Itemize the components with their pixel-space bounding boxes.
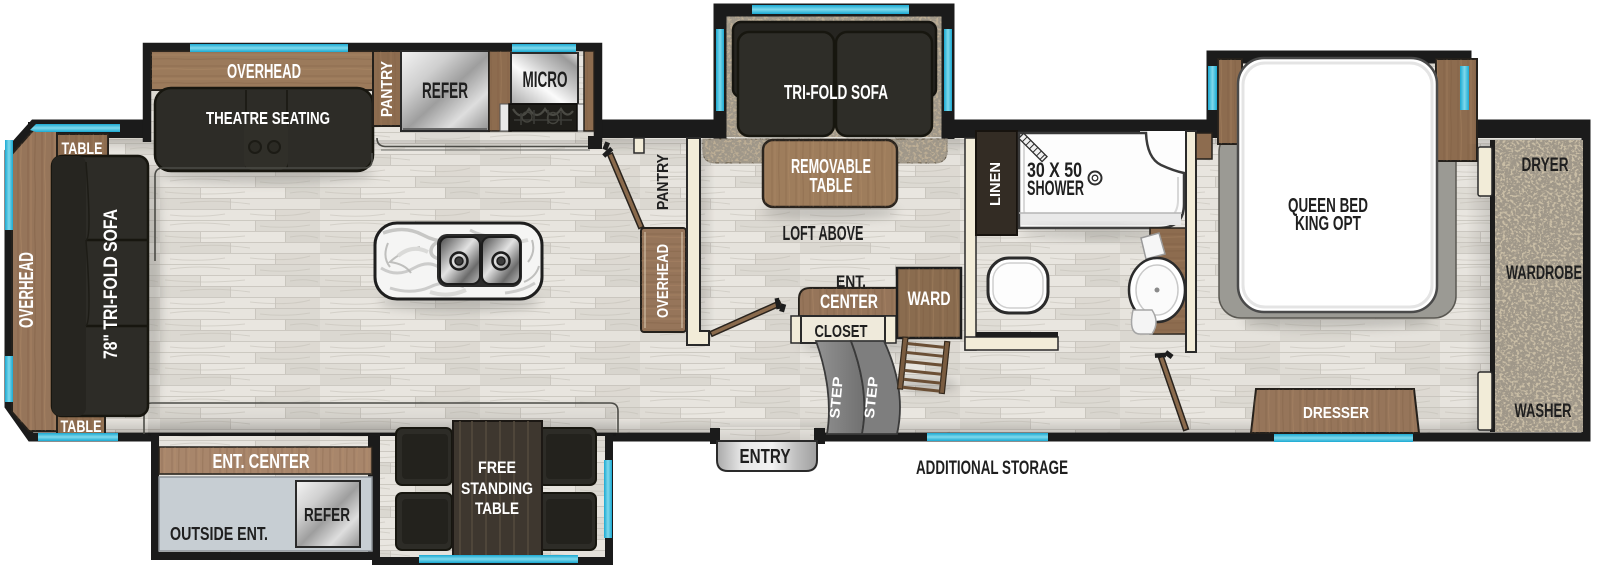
svg-text:TABLE: TABLE — [475, 499, 519, 518]
svg-text:ENT. CENTER: ENT. CENTER — [213, 451, 310, 473]
svg-text:CLOSET: CLOSET — [815, 321, 868, 341]
svg-text:CENTER: CENTER — [820, 292, 878, 313]
svg-text:LOFT ABOVE: LOFT ABOVE — [783, 223, 864, 245]
svg-text:ENTRY: ENTRY — [740, 446, 791, 468]
svg-text:OVERHEAD: OVERHEAD — [227, 61, 301, 83]
svg-text:TABLE: TABLE — [62, 140, 103, 158]
svg-text:THEATRE SEATING: THEATRE SEATING — [206, 108, 330, 128]
svg-text:OVERHEAD: OVERHEAD — [16, 252, 38, 328]
svg-text:PANTRY: PANTRY — [379, 61, 396, 117]
svg-text:WARD: WARD — [908, 289, 951, 310]
svg-text:TRI-FOLD SOFA: TRI-FOLD SOFA — [784, 82, 888, 104]
svg-text:ENT.: ENT. — [836, 272, 866, 291]
svg-text:LINEN: LINEN — [987, 162, 1004, 206]
svg-text:PANTRY: PANTRY — [655, 154, 672, 210]
svg-text:OVERHEAD: OVERHEAD — [655, 244, 672, 318]
svg-text:TABLE: TABLE — [810, 175, 853, 197]
svg-text:KING OPT: KING OPT — [1295, 212, 1361, 235]
svg-text:DRYER: DRYER — [1522, 155, 1569, 176]
svg-text:WARDROBE: WARDROBE — [1506, 263, 1582, 284]
svg-text:WASHER: WASHER — [1515, 401, 1572, 422]
svg-text:MICRO: MICRO — [523, 67, 568, 92]
svg-text:REFER: REFER — [304, 505, 350, 525]
svg-text:FREE: FREE — [478, 458, 516, 477]
svg-text:TABLE: TABLE — [61, 418, 102, 436]
svg-text:DRESSER: DRESSER — [1303, 405, 1369, 422]
svg-text:STANDING: STANDING — [461, 479, 533, 498]
svg-text:OUTSIDE ENT.: OUTSIDE ENT. — [170, 524, 268, 544]
svg-text:SHOWER: SHOWER — [1027, 177, 1084, 200]
svg-text:ADDITIONAL STORAGE: ADDITIONAL STORAGE — [916, 458, 1068, 479]
svg-text:78" TRI-FOLD SOFA: 78" TRI-FOLD SOFA — [101, 209, 122, 359]
svg-text:REFER: REFER — [422, 78, 468, 103]
